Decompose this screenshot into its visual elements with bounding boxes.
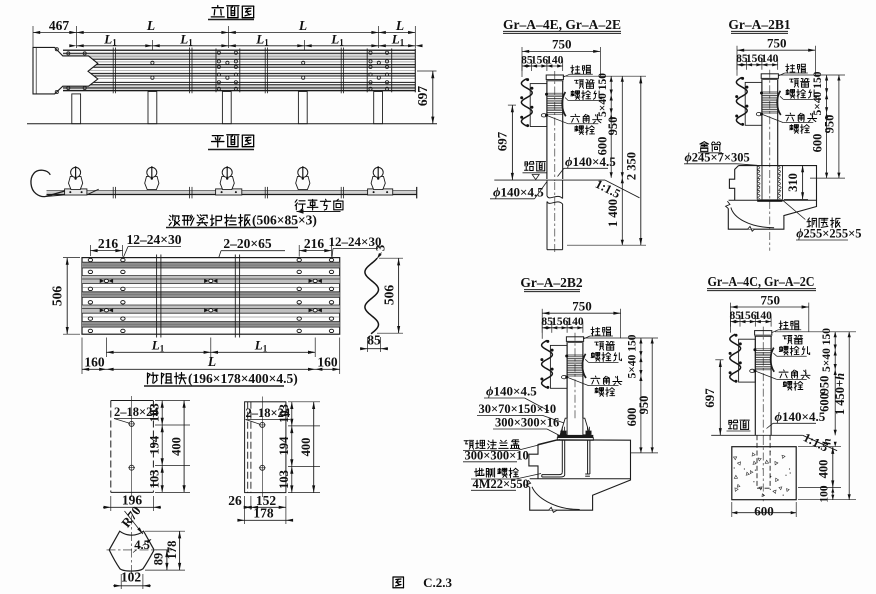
svg-text:5×40 150: 5×40 150 [597, 73, 609, 117]
svg-text:h: h [822, 438, 834, 444]
svg-text:950: 950 [606, 117, 620, 136]
svg-text:26: 26 [228, 493, 242, 508]
svg-text:697: 697 [494, 131, 509, 151]
svg-text:300×300×16: 300×300×16 [495, 416, 559, 430]
svg-text:160: 160 [84, 355, 105, 370]
svg-text:506: 506 [381, 285, 396, 306]
svg-text:194: 194 [148, 435, 162, 455]
svg-text:L: L [298, 18, 307, 33]
svg-text:12–24×30: 12–24×30 [127, 232, 182, 247]
svg-text:103: 103 [277, 470, 291, 489]
svg-text:4.5: 4.5 [134, 538, 150, 552]
svg-text:2–20×65: 2–20×65 [223, 236, 271, 251]
svg-text:1 400: 1 400 [606, 199, 620, 227]
svg-text:216: 216 [304, 236, 325, 251]
svg-text:Gr–A–4E, Gr–A–2E: Gr–A–4E, Gr–A–2E [503, 17, 621, 32]
svg-text:697: 697 [415, 86, 430, 107]
svg-text:3: 3 [374, 245, 388, 251]
svg-text:ϕ140×4.5: ϕ140×4.5 [493, 185, 544, 200]
svg-text:400: 400 [169, 437, 183, 456]
svg-text:950: 950 [817, 376, 831, 395]
svg-text:750: 750 [767, 36, 787, 51]
svg-text:Gr–A–2B1: Gr–A–2B1 [728, 17, 790, 32]
svg-text:89: 89 [152, 553, 166, 566]
svg-text:1 450+h: 1 450+h [833, 373, 847, 415]
svg-text:ϕ255×255×5: ϕ255×255×5 [796, 227, 861, 241]
svg-text:310: 310 [786, 173, 800, 192]
svg-text:506: 506 [50, 286, 65, 307]
svg-text:102: 102 [121, 570, 142, 585]
svg-text:103: 103 [148, 470, 162, 489]
svg-text:178: 178 [165, 541, 179, 560]
svg-text:ϕ140×4.5: ϕ140×4.5 [486, 384, 537, 399]
svg-text:750: 750 [572, 299, 592, 314]
svg-text:5×40 150: 5×40 150 [812, 71, 824, 115]
svg-text:750: 750 [552, 37, 572, 52]
svg-text:30×70×150×10: 30×70×150×10 [479, 402, 557, 416]
svg-text:103: 103 [277, 404, 291, 423]
svg-text:5×40 150: 5×40 150 [821, 328, 833, 372]
svg-text:194: 194 [277, 436, 291, 456]
svg-text:85: 85 [367, 333, 381, 348]
svg-text:(506×85×3): (506×85×3) [252, 213, 317, 228]
svg-text:140: 140 [761, 53, 779, 65]
svg-text:950: 950 [823, 115, 837, 134]
svg-text:140: 140 [755, 310, 773, 322]
svg-text:600: 600 [595, 137, 609, 156]
svg-text:600: 600 [817, 393, 831, 412]
svg-text:750: 750 [760, 292, 780, 307]
svg-text:140: 140 [546, 54, 564, 66]
svg-text:Gr–A–2B2: Gr–A–2B2 [520, 275, 582, 290]
svg-text:Gr–A–4C, Gr–A–2C: Gr–A–4C, Gr–A–2C [708, 274, 815, 289]
svg-text:160: 160 [317, 355, 338, 370]
svg-text:400: 400 [299, 438, 313, 457]
svg-text:467: 467 [49, 18, 70, 33]
svg-text:2 350: 2 350 [624, 152, 638, 180]
svg-text:400: 400 [816, 460, 830, 479]
svg-text:600: 600 [811, 134, 825, 153]
svg-text:600: 600 [754, 504, 774, 519]
svg-text:140: 140 [566, 316, 584, 328]
svg-text:950: 950 [637, 396, 651, 415]
svg-text:L: L [207, 354, 216, 369]
svg-text:697: 697 [702, 388, 717, 408]
svg-text:L: L [146, 18, 155, 33]
svg-text:(196×178×400×4.5): (196×178×400×4.5) [188, 371, 298, 386]
svg-text:100: 100 [818, 485, 830, 503]
svg-text:103: 103 [148, 403, 162, 422]
svg-text:5×40 150: 5×40 150 [627, 334, 639, 378]
svg-text:C.2.3: C.2.3 [423, 575, 452, 590]
svg-text:216: 216 [98, 236, 119, 251]
